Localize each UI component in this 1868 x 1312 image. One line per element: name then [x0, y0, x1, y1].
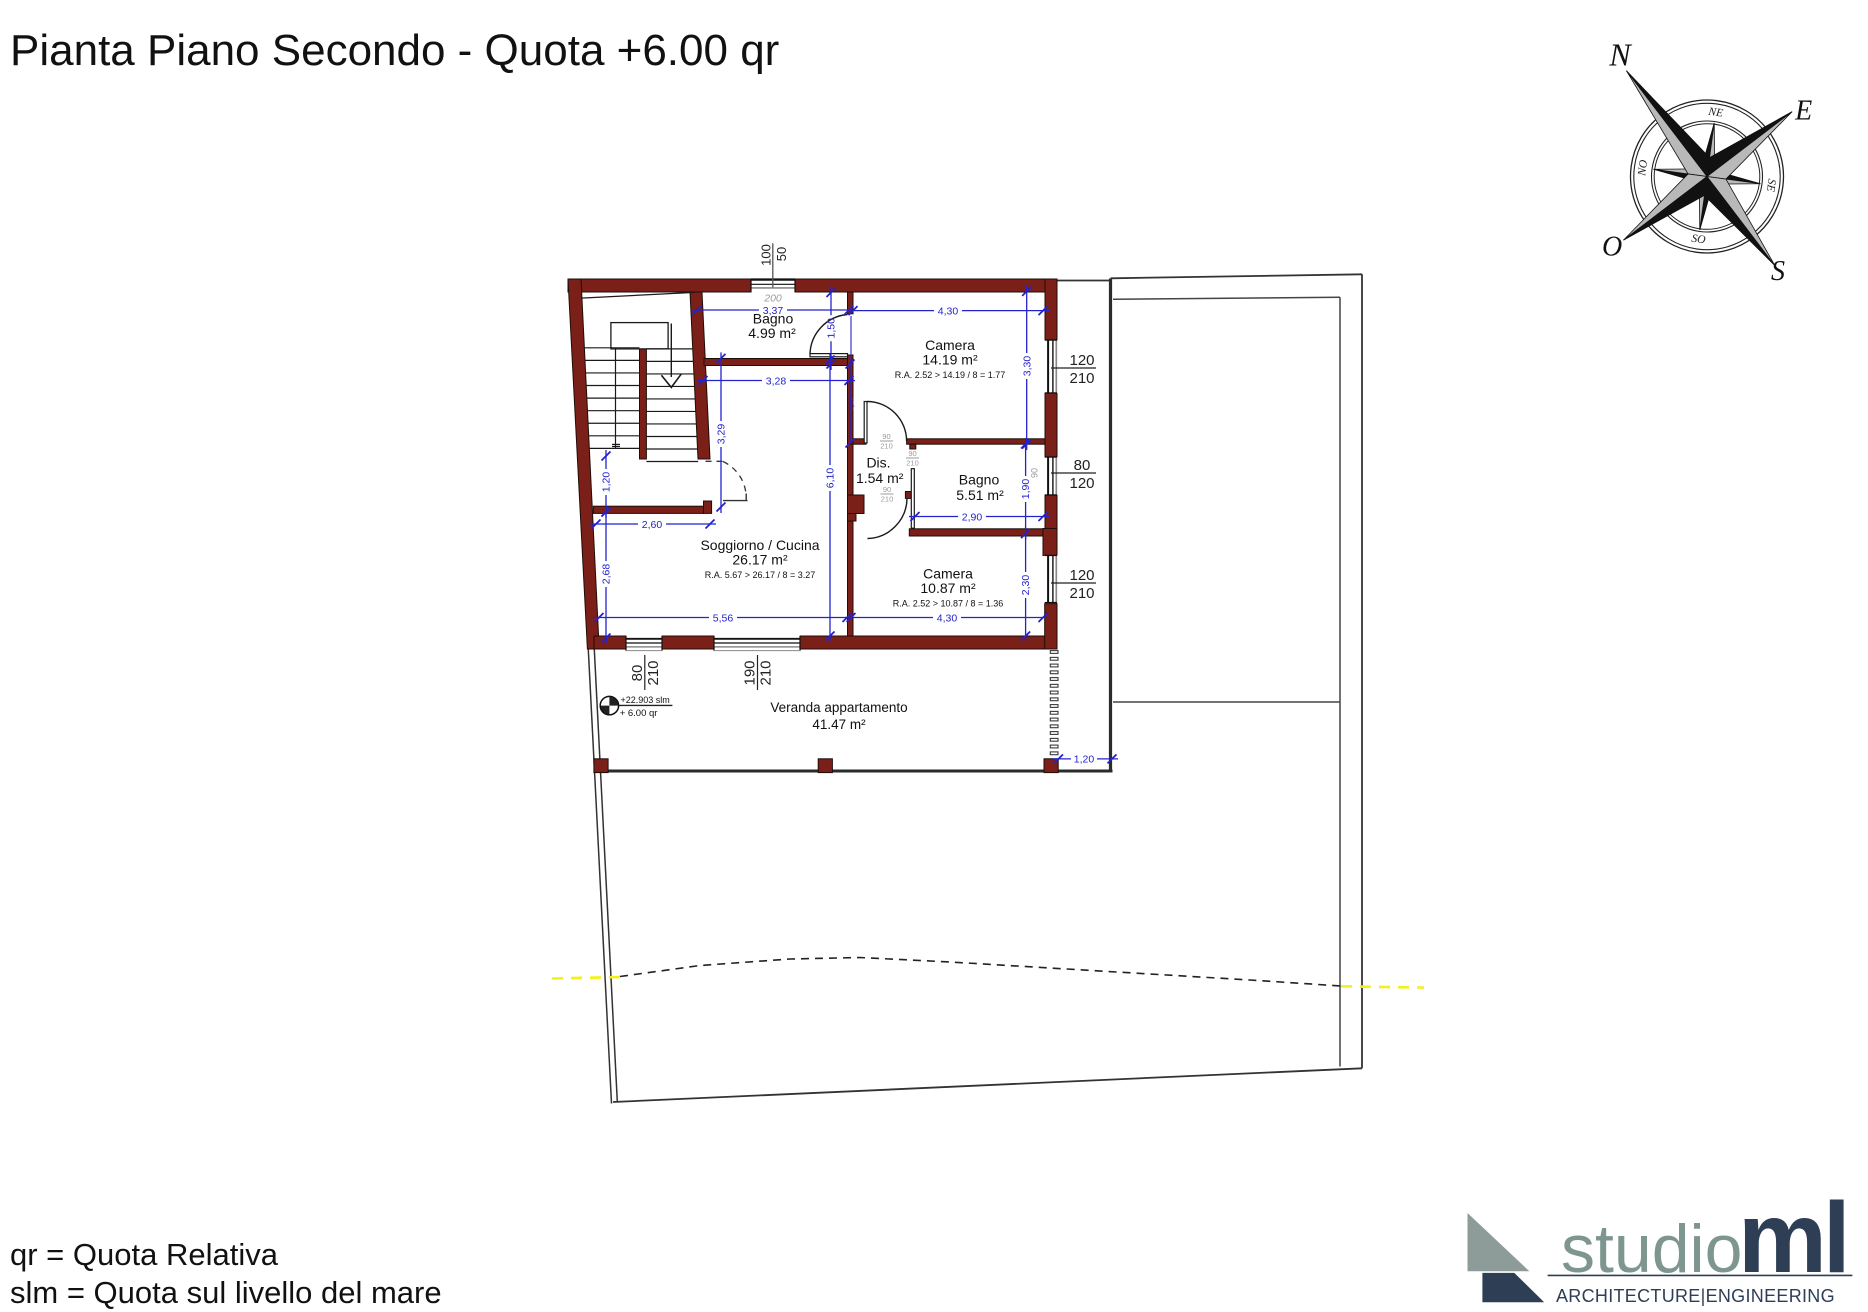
svg-text:1,50: 1,50 [826, 318, 838, 339]
svg-text:120: 120 [1069, 352, 1094, 369]
svg-text:ml: ml [1738, 1182, 1847, 1294]
svg-text:5.51 m²: 5.51 m² [956, 487, 1004, 503]
svg-text:1,20: 1,20 [1074, 754, 1095, 766]
svg-text:+ 6.00 qr: + 6.00 qr [620, 708, 658, 719]
svg-text:+22.903 slm: +22.903 slm [621, 695, 670, 705]
svg-text:5,56: 5,56 [713, 612, 734, 624]
svg-text:80: 80 [1074, 457, 1091, 474]
svg-text:3,28: 3,28 [766, 375, 787, 387]
svg-text:N: N [1608, 36, 1632, 72]
svg-text:4,30: 4,30 [938, 305, 959, 317]
svg-text:E: E [1794, 96, 1812, 127]
svg-text:2,68: 2,68 [601, 564, 613, 585]
svg-text:S: S [1771, 256, 1785, 287]
svg-text:R.A. 2.52 > 14.19 / 8 = 1.77: R.A. 2.52 > 14.19 / 8 = 1.77 [895, 370, 1006, 380]
svg-text:1,20: 1,20 [601, 472, 613, 493]
svg-text:1,10: 1,10 [847, 397, 856, 412]
svg-text:2,30: 2,30 [1020, 575, 1032, 596]
svg-text:2,60: 2,60 [642, 519, 663, 531]
svg-text:190: 190 [742, 660, 759, 685]
svg-text:90: 90 [908, 449, 916, 458]
svg-text:3,29: 3,29 [716, 424, 728, 445]
svg-text:1.54 m²: 1.54 m² [856, 470, 904, 486]
svg-text:4.99 m²: 4.99 m² [748, 325, 796, 341]
svg-text:210: 210 [881, 495, 894, 504]
svg-text:SO: SO [1691, 233, 1707, 247]
svg-text:10.87 m²: 10.87 m² [920, 580, 976, 596]
svg-text:3,30: 3,30 [1021, 356, 1033, 377]
svg-text:100: 100 [759, 244, 774, 266]
svg-text:Dis.: Dis. [866, 455, 890, 471]
svg-text:90: 90 [882, 432, 890, 441]
svg-text:210: 210 [906, 459, 919, 468]
svg-text:90: 90 [1030, 468, 1040, 478]
svg-text:26.17 m²: 26.17 m² [732, 552, 788, 568]
svg-text:41.47 m²: 41.47 m² [812, 717, 866, 732]
svg-text:3,37: 3,37 [763, 305, 784, 317]
svg-text:120: 120 [1069, 475, 1094, 492]
svg-text:1,90: 1,90 [1020, 479, 1032, 500]
svg-text:6,10: 6,10 [825, 468, 837, 489]
svg-text:50: 50 [774, 247, 789, 261]
svg-text:210: 210 [1069, 585, 1094, 602]
svg-text:120: 120 [1069, 567, 1094, 584]
svg-text:4,30: 4,30 [937, 612, 958, 624]
svg-text:Veranda appartamento: Veranda appartamento [770, 700, 907, 715]
svg-text:NO: NO [1636, 158, 1650, 177]
svg-text:210: 210 [645, 660, 662, 685]
svg-text:200: 200 [763, 293, 782, 305]
svg-text:Bagno: Bagno [959, 472, 1000, 488]
svg-text:90: 90 [883, 485, 891, 494]
svg-text:2,90: 2,90 [962, 511, 983, 523]
svg-text:80: 80 [629, 665, 646, 682]
svg-text:O: O [1602, 232, 1622, 263]
svg-text:14.19 m²: 14.19 m² [922, 352, 978, 368]
svg-text:NE: NE [1707, 106, 1724, 120]
svg-text:210: 210 [1069, 370, 1094, 387]
svg-text:ARCHITECTURE|ENGINEERING: ARCHITECTURE|ENGINEERING [1556, 1286, 1835, 1306]
svg-text:SE: SE [1764, 178, 1778, 192]
svg-text:210: 210 [758, 660, 775, 685]
svg-text:210: 210 [880, 442, 893, 451]
svg-text:R.A. 5.67 > 26.17 / 8 = 3.27: R.A. 5.67 > 26.17 / 8 = 3.27 [705, 570, 816, 580]
svg-text:R.A. 2.52 > 10.87 / 8 = 1.36: R.A. 2.52 > 10.87 / 8 = 1.36 [893, 599, 1004, 609]
